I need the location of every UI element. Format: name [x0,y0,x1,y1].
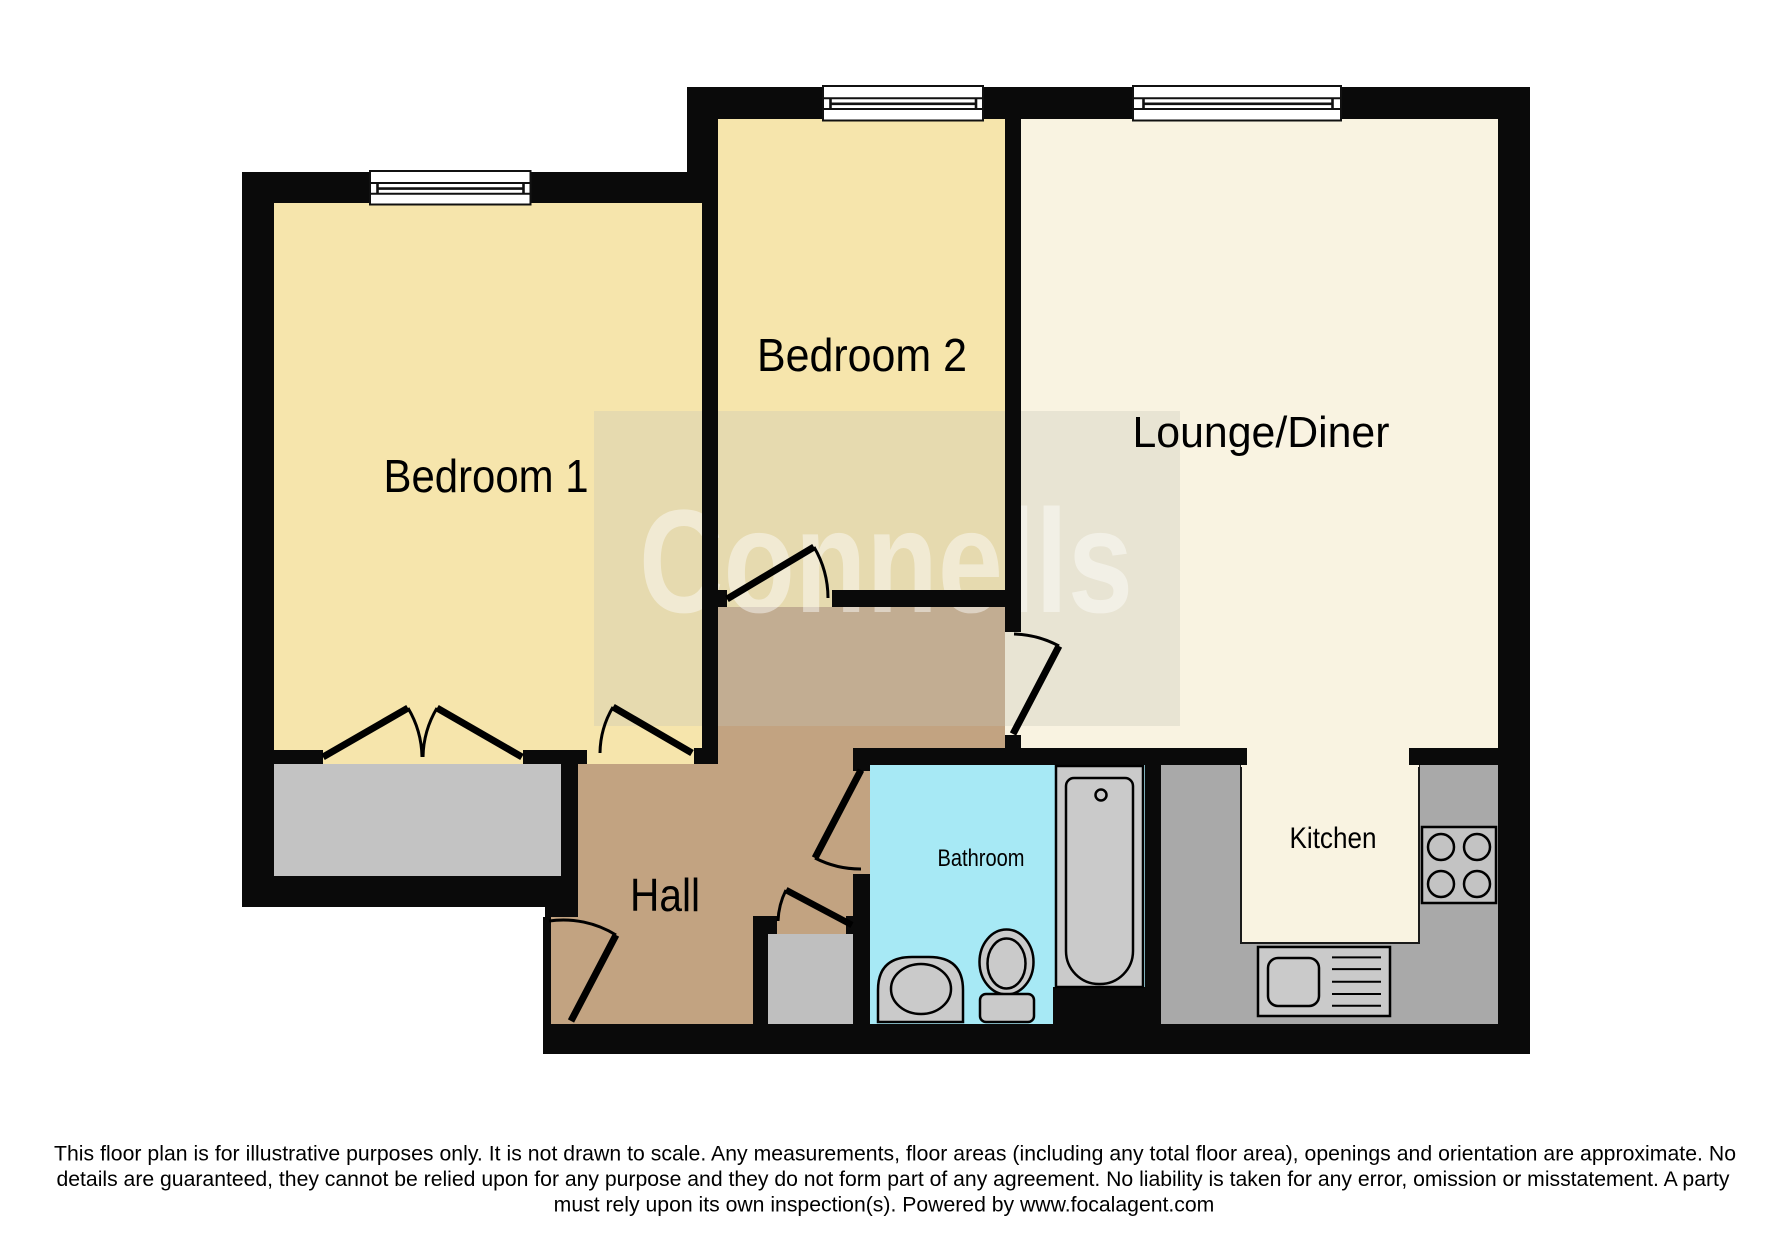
svg-text:This floor plan is for illustr: This floor plan is for illustrative purp… [54,1143,1736,1166]
svg-text:Bedroom 2: Bedroom 2 [757,329,967,381]
svg-text:Lounge/Diner: Lounge/Diner [1133,408,1390,457]
svg-text:details are guaranteed, they c: details are guaranteed, they cannot be r… [57,1168,1730,1191]
svg-text:Bathroom: Bathroom [938,845,1025,872]
svg-text:Bedroom 1: Bedroom 1 [384,450,589,502]
svg-text:Hall: Hall [630,869,700,921]
svg-text:Kitchen: Kitchen [1290,822,1377,855]
svg-text:must rely upon its own inspect: must rely upon its own inspection(s). Po… [554,1194,1215,1217]
